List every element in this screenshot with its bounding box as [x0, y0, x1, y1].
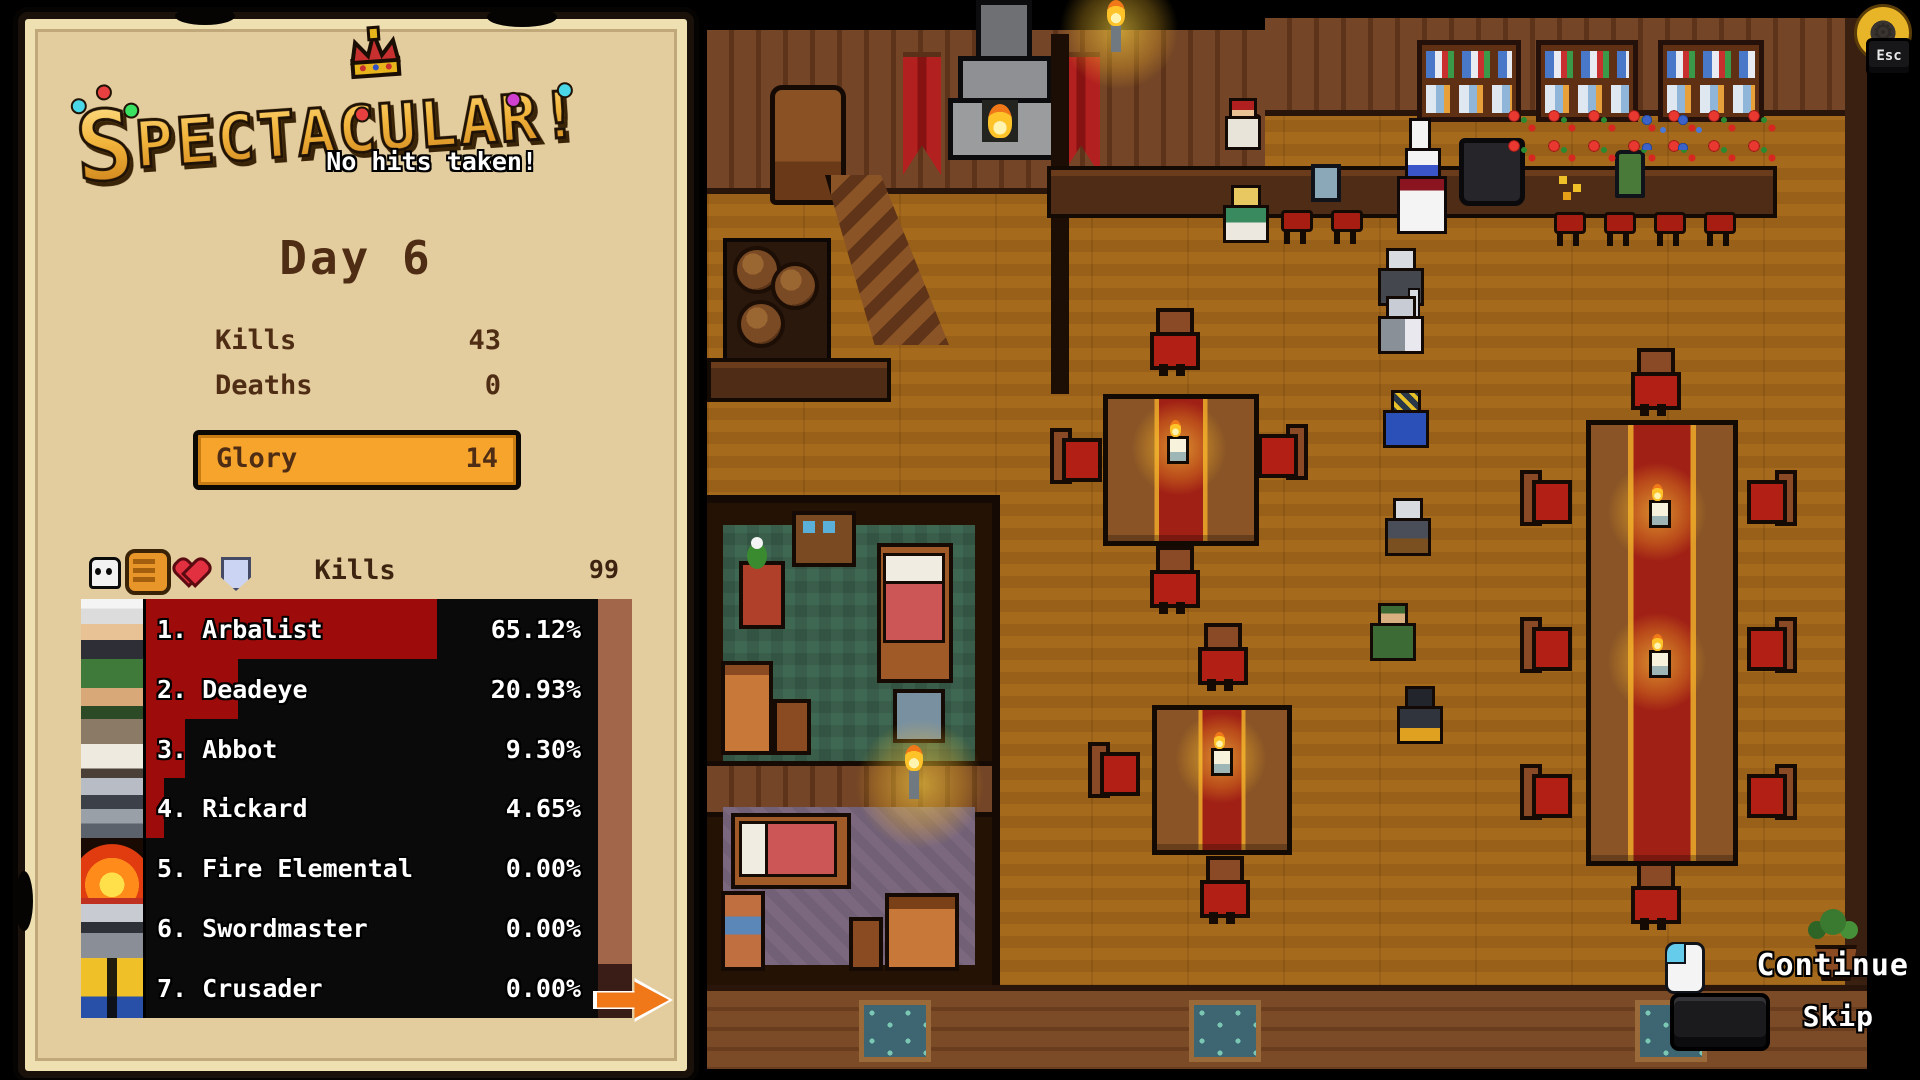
logo-subtitle: No hits taken! [326, 147, 537, 176]
candle-flame [1214, 732, 1225, 749]
bar-stool [1329, 208, 1363, 248]
maid-npc [1219, 185, 1269, 249]
small-window [1189, 1000, 1261, 1062]
bedroom-door [792, 511, 856, 567]
chair [1050, 424, 1100, 500]
avatar [81, 778, 146, 838]
parchment-tear [175, 7, 235, 25]
spacebar-key-icon [1670, 993, 1770, 1051]
kill-percentage: 0.00% [506, 914, 581, 943]
leaderboard-row[interactable]: 6. Swordmaster0.00% [81, 898, 595, 958]
torch-flame [905, 745, 923, 771]
stat-row: Kills43 [215, 325, 501, 370]
esc-keycap: Esc [1866, 38, 1912, 76]
rating-logo: SPECTACULAR! [50, 32, 659, 223]
avatar [81, 719, 146, 779]
flower-pot [739, 561, 785, 629]
fire-flame [988, 104, 1012, 138]
stool [773, 699, 811, 755]
leaderboard-row[interactable]: 4. Rickard4.65% [81, 778, 595, 838]
mug [1311, 164, 1341, 202]
glory-value: 14 [465, 443, 498, 474]
hero-name: 3. Abbot [157, 735, 277, 764]
chair [1150, 308, 1200, 384]
candle [1649, 500, 1671, 528]
desk [721, 661, 773, 755]
parchment-tear [15, 871, 33, 931]
leaderboard-row[interactable]: 7. Crusader0.00% [81, 958, 595, 1018]
hero-name: 2. Deadeye [157, 675, 308, 704]
leaderboard-row[interactable]: 2. Deadeye20.93% [81, 659, 595, 719]
hero-name: 4. Rickard [157, 794, 308, 823]
crown-icon [336, 23, 414, 90]
candle-flame [1170, 420, 1181, 437]
leaderboard-max-value: 99 [589, 555, 619, 584]
parchment-tear [487, 7, 557, 27]
kill-percentage: 4.65% [506, 794, 581, 823]
avatar [81, 838, 146, 898]
bedrooms-block [707, 495, 1000, 986]
chair [1198, 623, 1248, 699]
dining-table [1103, 394, 1259, 546]
torch-flame [1107, 0, 1125, 26]
leaderboard-metric-label: Kills [81, 555, 629, 586]
tavern-scene: ⚙ Esc Continue Skip [707, 0, 1920, 1080]
bar-stool [1552, 210, 1586, 250]
door-window [803, 521, 815, 533]
barrel [737, 300, 785, 348]
next-page-arrow-button[interactable] [593, 975, 673, 1025]
candle [1167, 436, 1189, 464]
candle-flame [1652, 634, 1663, 651]
kill-percentage: 0.00% [506, 854, 581, 883]
chair [1520, 466, 1570, 542]
chair [1747, 466, 1797, 542]
glory-box: Glory 14 [193, 430, 521, 490]
chair [1200, 856, 1250, 932]
dining-table [1152, 705, 1292, 855]
leaderboard-row[interactable]: 5. Fire Elemental0.00% [81, 838, 595, 898]
stat-value: 0 [485, 370, 501, 401]
crates [721, 891, 765, 971]
hero-name: 6. Swordmaster [157, 914, 368, 943]
glory-label: Glory [216, 443, 297, 474]
rating-logo-text: SPECTACULAR! [72, 65, 583, 196]
candle-flame [1652, 484, 1663, 501]
mouse-left-click-icon [1665, 942, 1705, 994]
kill-percentage: 65.12% [491, 615, 581, 644]
stat-label: Kills [215, 325, 296, 356]
stat-value: 43 [468, 325, 501, 356]
side-bench [707, 358, 891, 402]
fireplace [948, 0, 1052, 152]
kill-percentage: 9.30% [506, 735, 581, 764]
bed [731, 813, 851, 889]
leaderboard-header: Kills 99 [81, 553, 629, 593]
bed [877, 543, 953, 683]
arrow-right-icon [597, 979, 669, 1021]
kill-percentage: 0.00% [506, 974, 581, 1003]
hero-name: 5. Fire Elemental [157, 854, 413, 883]
blue-flowers [1635, 110, 1711, 150]
scene-right-void [1867, 0, 1920, 1080]
gold-coins [1559, 176, 1567, 184]
stats-list: Kills43Deaths0 [215, 325, 501, 415]
barrel [771, 262, 819, 310]
esc-settings-button[interactable]: ⚙ Esc [1850, 4, 1912, 72]
continue-button[interactable]: Continue [1717, 948, 1909, 983]
avatar [81, 599, 146, 659]
white-flower [751, 537, 763, 549]
bedroom-chair [893, 689, 945, 743]
leaderboard-row[interactable]: 3. Abbot9.30% [81, 719, 595, 779]
candle [1211, 748, 1233, 776]
bar-stool [1652, 210, 1686, 250]
jug [849, 917, 883, 971]
leaderboard-list: 1. Arbalist65.12%2. Deadeye20.93%3. Abbo… [81, 599, 595, 1018]
avatar [81, 659, 146, 719]
candle [1649, 650, 1671, 678]
day-title: Day 6 [25, 231, 687, 285]
skip-button[interactable]: Skip [1782, 1000, 1874, 1033]
chair [1150, 546, 1200, 622]
chair [1088, 738, 1138, 814]
chair [1747, 613, 1797, 689]
patron-npc [1219, 98, 1263, 154]
goose-bartender [1395, 118, 1447, 234]
chair [1520, 613, 1570, 689]
hero-name: 1. Arbalist [157, 615, 323, 644]
stat-label: Deaths [215, 370, 313, 401]
small-window [859, 1000, 931, 1062]
bar-stool [1279, 208, 1313, 248]
bar-stool [1702, 210, 1736, 250]
stat-row: Deaths0 [215, 370, 501, 415]
results-panel: SPECTACULAR! No hits taken! Day 6 Kills4… [18, 12, 694, 1078]
kill-percentage: 20.93% [491, 675, 581, 704]
avatar [81, 958, 146, 1018]
hero-name: 7. Crusader [157, 974, 323, 1003]
chair [1520, 760, 1570, 836]
leaderboard-scrollbar[interactable] [595, 599, 632, 1018]
chair [1747, 760, 1797, 836]
leaderboard-row[interactable]: 1. Arbalist65.12% [81, 599, 595, 659]
dresser [885, 893, 959, 971]
chair [1258, 420, 1308, 496]
avatar [81, 898, 146, 958]
chair [1631, 862, 1681, 938]
bar-stool [1602, 210, 1636, 250]
chair [1631, 348, 1681, 424]
